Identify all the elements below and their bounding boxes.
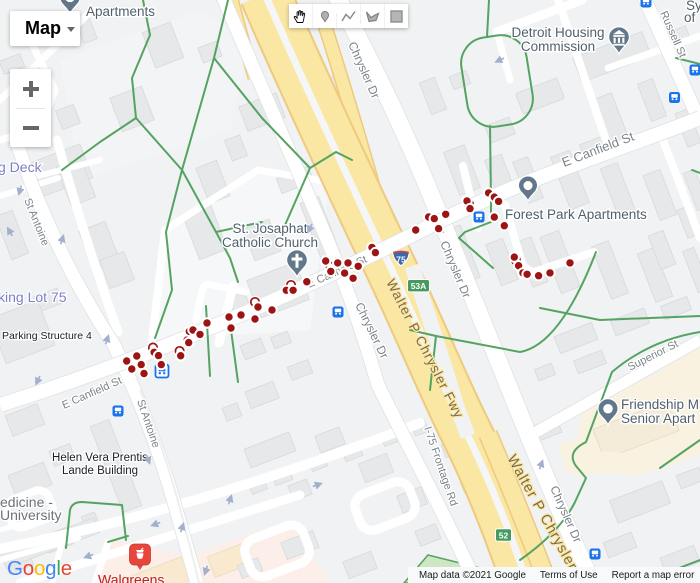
svg-text:Helen Vera Prentis: Helen Vera Prentis [52, 452, 148, 464]
svg-text:University: University [0, 507, 61, 523]
svg-text:Friendship M: Friendship M [621, 397, 699, 412]
svg-text:53A: 53A [411, 281, 427, 291]
svg-text:Lande Building: Lande Building [62, 465, 138, 477]
svg-text:Forest Park Apartments: Forest Park Apartments [505, 207, 647, 222]
svg-text:Apartments: Apartments [86, 4, 155, 19]
svg-text:Parking Structure 4: Parking Structure 4 [2, 330, 92, 342]
svg-text:g Deck: g Deck [0, 159, 43, 175]
svg-text:Catholic Church: Catholic Church [222, 235, 318, 250]
svg-text:52: 52 [499, 530, 509, 540]
svg-text:Senior Apart: Senior Apart [621, 411, 696, 426]
svg-text:St. Josaphat: St. Josaphat [232, 221, 307, 236]
svg-text:Detroit Housing: Detroit Housing [511, 25, 604, 40]
svg-text:king Lot 75: king Lot 75 [0, 289, 67, 305]
svg-text:75: 75 [396, 255, 406, 265]
svg-text:Commission: Commission [521, 39, 595, 54]
svg-text:of: of [684, 10, 696, 25]
svg-text:Walgreens: Walgreens [98, 572, 164, 583]
